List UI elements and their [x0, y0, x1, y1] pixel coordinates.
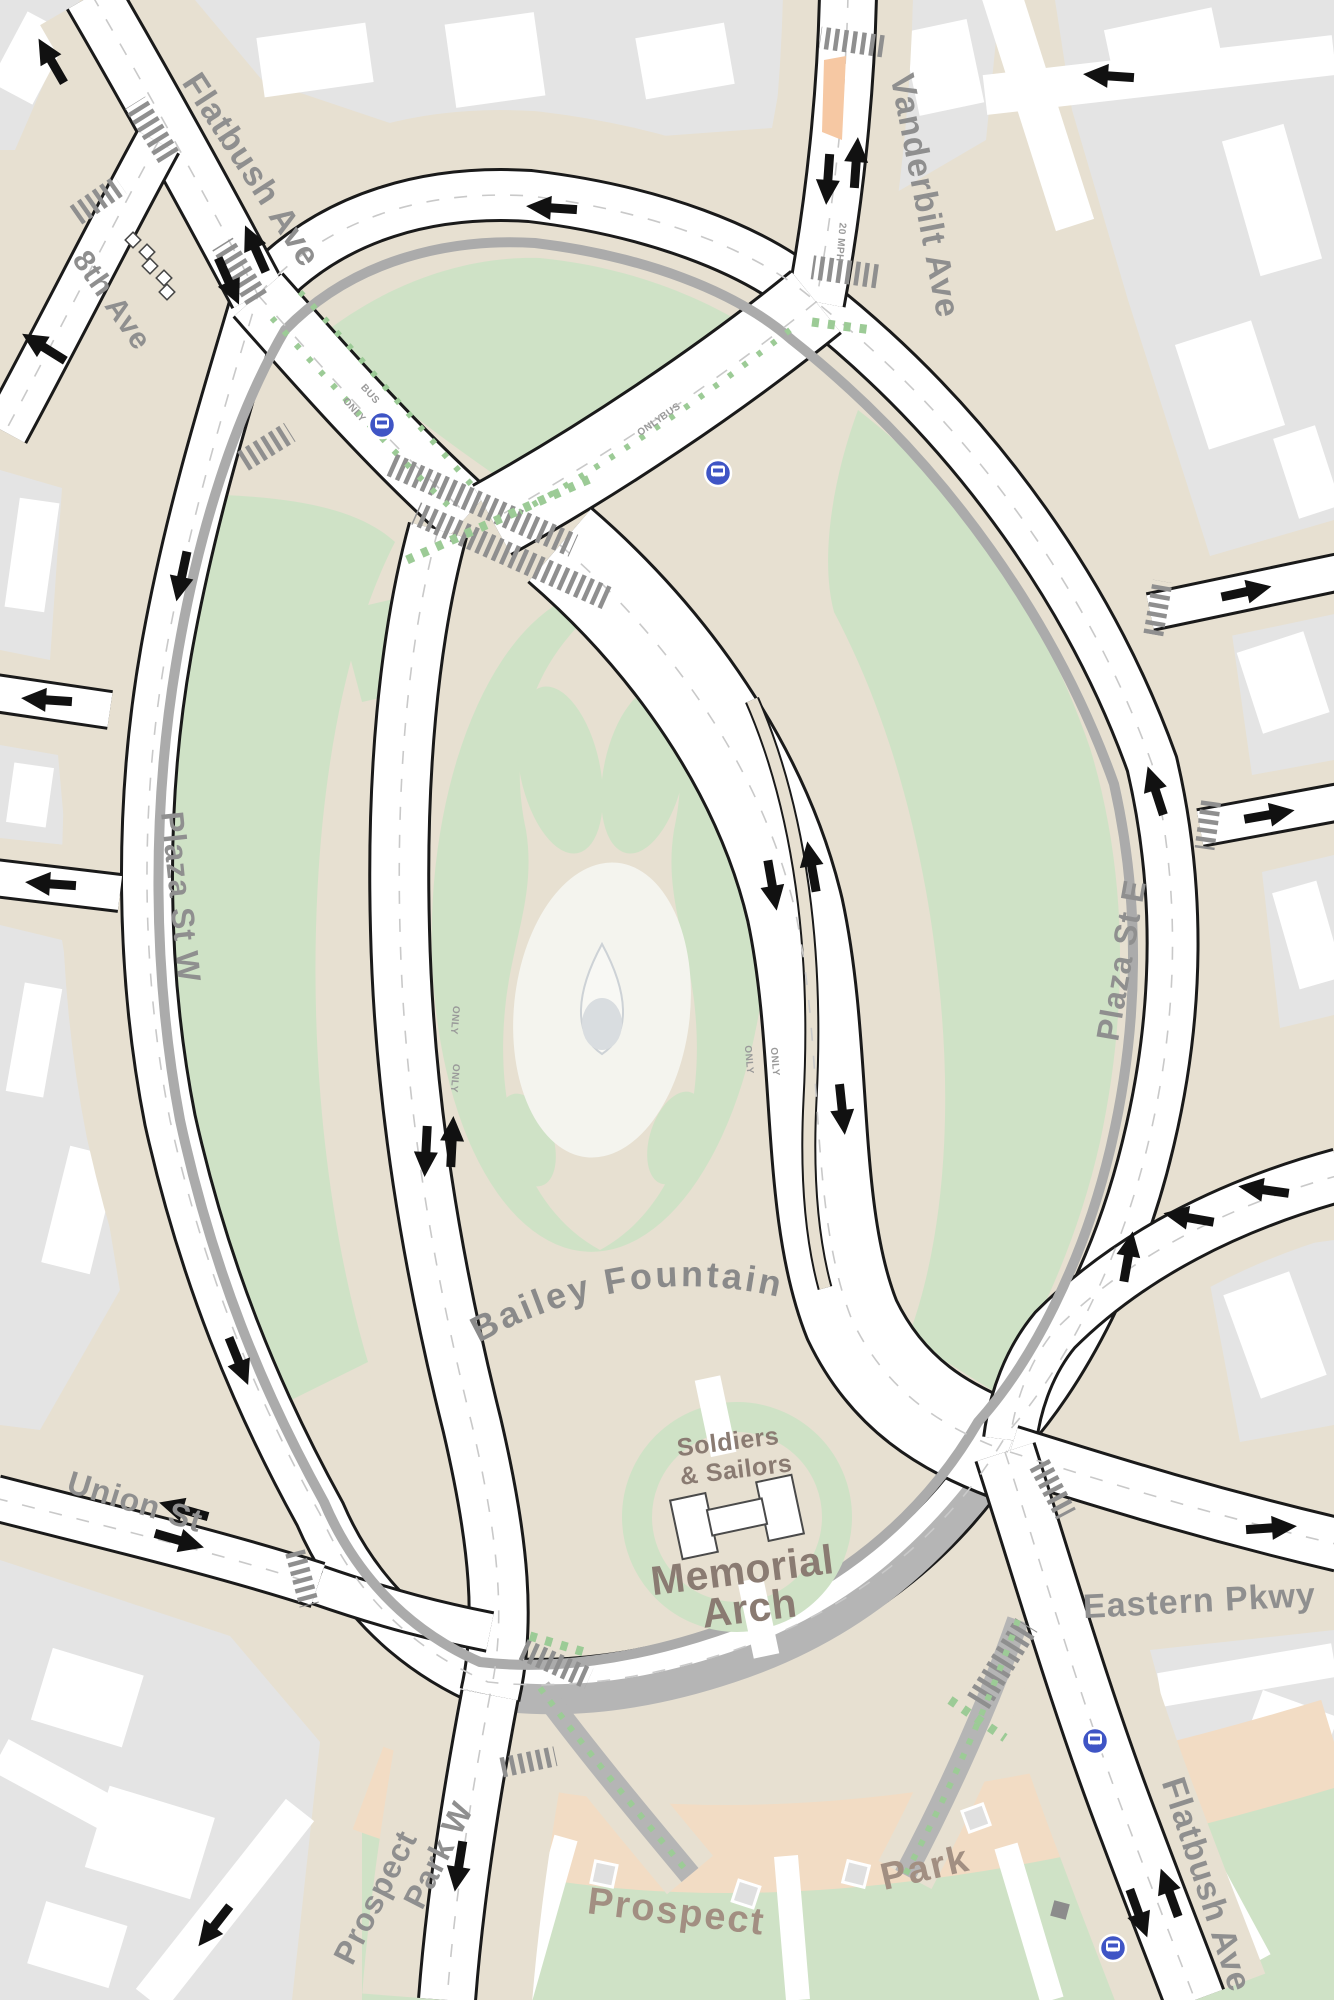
- bus-icon: [369, 412, 395, 438]
- bus-icon: [1082, 1728, 1108, 1754]
- fountain-basin: [582, 998, 622, 1050]
- map-canvas: ONLY BUS ONLY BUS ONLY ONLY ONLY ONLY 20…: [0, 0, 1334, 2000]
- bus-icon: [705, 460, 731, 486]
- plaza-map: ONLY BUS ONLY BUS ONLY ONLY ONLY ONLY 20…: [0, 0, 1334, 2000]
- bus-icon: [1100, 1935, 1126, 1961]
- refuge-island: [822, 56, 846, 140]
